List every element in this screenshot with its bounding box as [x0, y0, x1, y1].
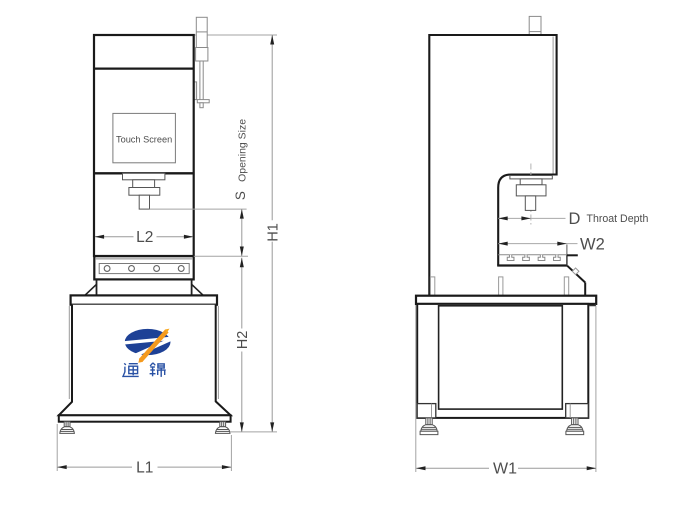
svg-text:H1: H1 [266, 223, 282, 242]
svg-text:Opening Size: Opening Size [236, 119, 248, 182]
svg-text:H2: H2 [235, 331, 251, 350]
svg-text:D: D [569, 210, 581, 228]
svg-text:W1: W1 [493, 460, 517, 477]
svg-text:L2: L2 [136, 229, 153, 246]
svg-text:Touch Screen: Touch Screen [116, 134, 172, 144]
svg-text:Throat Depth: Throat Depth [587, 213, 649, 225]
svg-text:L1: L1 [136, 459, 153, 476]
svg-text:W2: W2 [580, 235, 605, 253]
svg-text:S: S [233, 191, 248, 200]
